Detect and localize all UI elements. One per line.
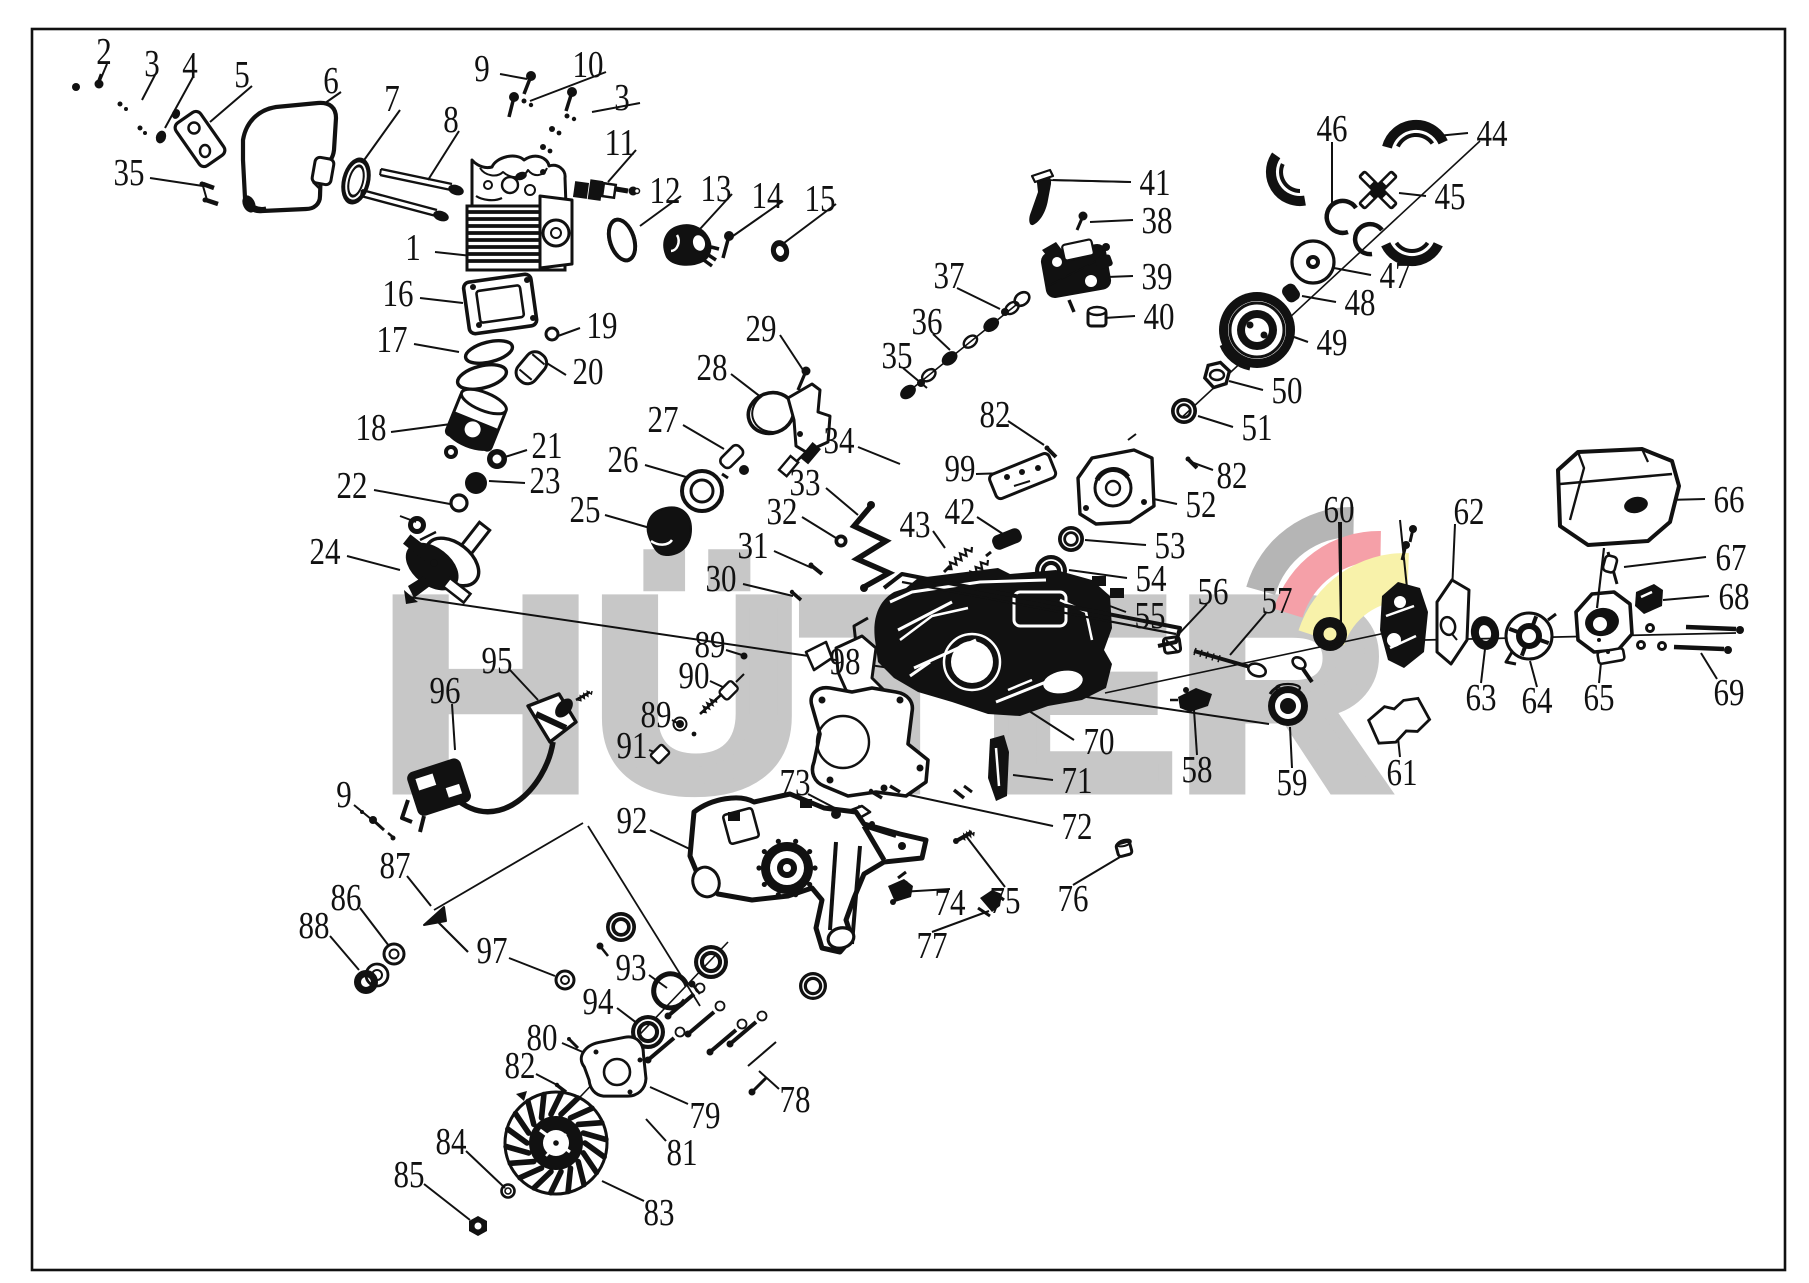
svg-text:93: 93 <box>616 947 647 989</box>
svg-text:13: 13 <box>701 168 732 210</box>
svg-text:81: 81 <box>667 1132 698 1174</box>
svg-text:26: 26 <box>608 439 639 481</box>
svg-text:5: 5 <box>234 54 250 96</box>
svg-text:72: 72 <box>1062 806 1093 848</box>
svg-text:4: 4 <box>182 45 198 87</box>
svg-text:67: 67 <box>1716 537 1747 579</box>
svg-text:29: 29 <box>746 308 777 350</box>
svg-text:52: 52 <box>1186 484 1217 526</box>
svg-text:64: 64 <box>1522 680 1553 722</box>
svg-text:60: 60 <box>1324 489 1355 531</box>
svg-text:68: 68 <box>1719 576 1750 618</box>
svg-text:6: 6 <box>323 60 339 102</box>
svg-text:28: 28 <box>697 347 728 389</box>
svg-text:59: 59 <box>1277 762 1308 804</box>
svg-text:41: 41 <box>1140 162 1171 204</box>
svg-text:36: 36 <box>912 301 943 343</box>
svg-text:9: 9 <box>474 48 490 90</box>
svg-text:50: 50 <box>1272 370 1303 412</box>
svg-text:83: 83 <box>644 1192 675 1234</box>
svg-text:7: 7 <box>384 78 400 120</box>
svg-text:51: 51 <box>1242 407 1273 449</box>
svg-text:71: 71 <box>1062 760 1093 802</box>
svg-text:37: 37 <box>934 255 965 297</box>
svg-text:43: 43 <box>900 504 931 546</box>
svg-text:18: 18 <box>356 407 387 449</box>
svg-text:91: 91 <box>617 725 648 767</box>
svg-text:44: 44 <box>1477 113 1508 155</box>
svg-text:66: 66 <box>1714 479 1745 521</box>
svg-text:82: 82 <box>980 394 1011 436</box>
svg-text:65: 65 <box>1584 677 1615 719</box>
svg-text:98: 98 <box>830 641 861 683</box>
svg-text:10: 10 <box>573 44 604 86</box>
svg-text:3: 3 <box>614 77 630 119</box>
svg-text:11: 11 <box>605 122 636 164</box>
svg-text:47: 47 <box>1380 255 1411 297</box>
svg-text:99: 99 <box>945 448 976 490</box>
svg-text:92: 92 <box>617 800 648 842</box>
svg-text:19: 19 <box>587 305 618 347</box>
svg-text:97: 97 <box>477 930 508 972</box>
svg-text:77: 77 <box>917 925 948 967</box>
svg-text:46: 46 <box>1317 108 1348 150</box>
svg-text:30: 30 <box>706 558 737 600</box>
svg-text:1: 1 <box>405 227 421 269</box>
svg-text:31: 31 <box>738 525 769 567</box>
svg-text:57: 57 <box>1262 580 1293 622</box>
svg-text:22: 22 <box>337 465 368 507</box>
svg-text:3: 3 <box>144 43 160 85</box>
svg-text:56: 56 <box>1198 571 1229 613</box>
svg-text:78: 78 <box>780 1079 811 1121</box>
svg-text:9: 9 <box>336 774 352 816</box>
svg-text:88: 88 <box>299 905 330 947</box>
svg-text:87: 87 <box>380 845 411 887</box>
svg-text:35: 35 <box>882 335 913 377</box>
svg-text:86: 86 <box>331 877 362 919</box>
svg-text:55: 55 <box>1135 595 1166 637</box>
svg-text:39: 39 <box>1142 256 1173 298</box>
svg-text:23: 23 <box>530 460 561 502</box>
svg-text:85: 85 <box>394 1154 425 1196</box>
svg-text:96: 96 <box>430 670 461 712</box>
svg-text:42: 42 <box>945 491 976 533</box>
svg-text:2: 2 <box>96 31 112 73</box>
svg-text:74: 74 <box>935 882 966 924</box>
svg-text:8: 8 <box>443 99 459 141</box>
svg-text:35: 35 <box>114 152 145 194</box>
svg-text:94: 94 <box>583 981 614 1023</box>
svg-text:73: 73 <box>780 762 811 804</box>
svg-text:17: 17 <box>377 319 408 361</box>
svg-text:33: 33 <box>790 462 821 504</box>
svg-text:70: 70 <box>1084 721 1115 763</box>
svg-text:90: 90 <box>679 655 710 697</box>
svg-text:15: 15 <box>805 178 836 220</box>
svg-text:82: 82 <box>1217 455 1248 497</box>
svg-text:27: 27 <box>648 399 679 441</box>
svg-text:82: 82 <box>505 1045 536 1087</box>
svg-text:63: 63 <box>1466 677 1497 719</box>
svg-text:25: 25 <box>570 489 601 531</box>
svg-text:34: 34 <box>824 420 855 462</box>
svg-text:48: 48 <box>1345 282 1376 324</box>
svg-text:79: 79 <box>690 1095 721 1137</box>
svg-text:54: 54 <box>1136 558 1167 600</box>
svg-text:24: 24 <box>310 531 341 573</box>
svg-text:20: 20 <box>573 351 604 393</box>
svg-text:58: 58 <box>1182 749 1213 791</box>
svg-text:95: 95 <box>482 640 513 682</box>
svg-text:75: 75 <box>990 880 1021 922</box>
svg-text:69: 69 <box>1714 672 1745 714</box>
svg-text:40: 40 <box>1144 296 1175 338</box>
svg-text:61: 61 <box>1387 752 1418 794</box>
svg-text:49: 49 <box>1317 322 1348 364</box>
svg-text:14: 14 <box>752 175 783 217</box>
svg-text:76: 76 <box>1058 878 1089 920</box>
svg-text:12: 12 <box>650 170 681 212</box>
svg-text:38: 38 <box>1142 200 1173 242</box>
svg-text:16: 16 <box>383 273 414 315</box>
svg-text:84: 84 <box>436 1121 467 1163</box>
svg-text:62: 62 <box>1454 491 1485 533</box>
svg-text:45: 45 <box>1435 176 1466 218</box>
